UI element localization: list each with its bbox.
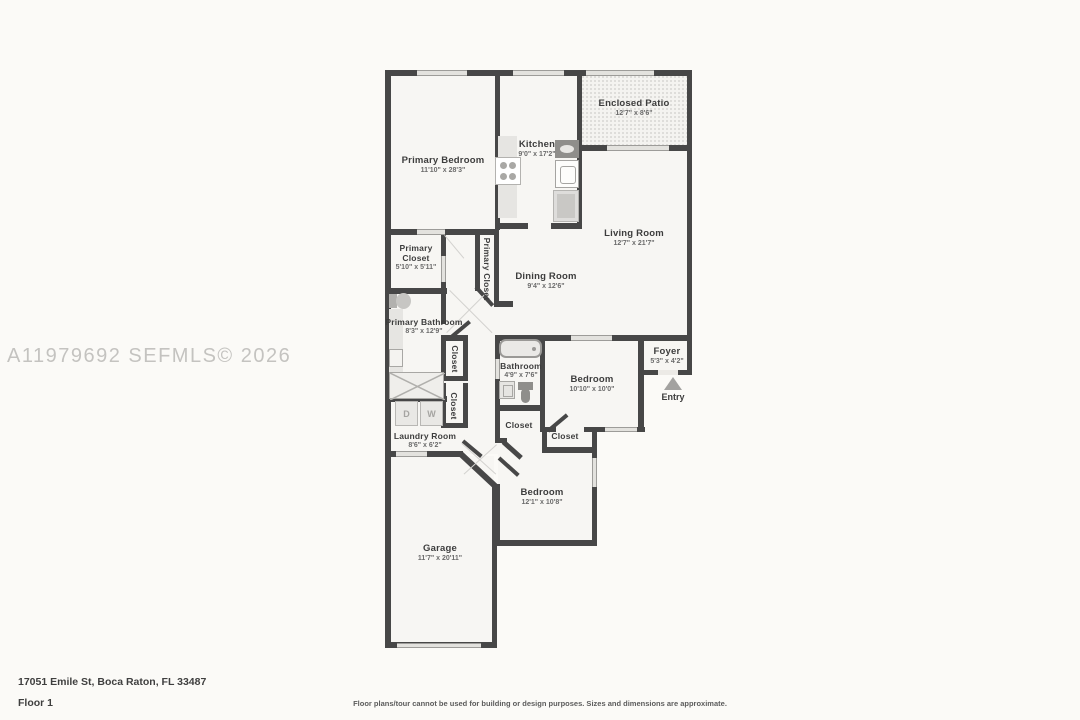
room-label-living-room: Living Room 12'7" x 21'7" xyxy=(604,229,664,248)
room-label-bathroom: Bathroom 4'9" x 7'6" xyxy=(500,362,542,380)
washer-icon: W xyxy=(420,401,443,426)
entry-label: Entry xyxy=(661,392,684,402)
washer-label: W xyxy=(427,409,436,419)
bathtub-icon xyxy=(499,339,542,358)
toilet-icon xyxy=(396,293,411,309)
window xyxy=(571,335,612,341)
room-label-garage: Garage 11'7" x 20'11" xyxy=(418,544,462,563)
wall xyxy=(494,301,513,307)
wall xyxy=(495,223,528,229)
window xyxy=(513,70,564,76)
room-label-closet-hall-upper: Closet xyxy=(450,345,460,372)
window xyxy=(592,458,597,487)
stove-icon xyxy=(495,157,521,185)
wall-post xyxy=(654,70,663,76)
range-hood-icon xyxy=(555,140,579,158)
window xyxy=(586,70,657,76)
oven-icon xyxy=(555,160,579,188)
wall xyxy=(495,540,597,546)
toilet-icon xyxy=(521,389,530,403)
room-label-dining-room: Dining Room 9'4" x 12'6" xyxy=(515,272,576,291)
room-label-foyer: Foyer 5'3" x 4'2" xyxy=(650,347,683,366)
wall xyxy=(687,70,692,375)
sink-icon xyxy=(389,349,403,367)
fridge-icon xyxy=(553,190,579,222)
wall xyxy=(475,233,480,291)
room-label-closet-1: Closet xyxy=(505,421,532,431)
room-label-primary-bedroom: Primary Bedroom 11'10" x 28'3" xyxy=(402,156,485,175)
wall xyxy=(495,484,500,545)
wall xyxy=(463,337,468,381)
wall xyxy=(642,370,658,375)
wall xyxy=(441,423,468,428)
room-label-closet-2: Closet xyxy=(551,432,578,442)
floor-plan-canvas: D W Entry Primary Bedroom 11'10" x 28'3"… xyxy=(0,0,1080,720)
room-label-kitchen: Kitchen 9'0" x 17'2" xyxy=(518,140,555,159)
dryer-icon: D xyxy=(395,401,418,426)
wall xyxy=(678,370,692,375)
room-label-enclosed-patio: Enclosed Patio 12'7" x 8'6" xyxy=(599,99,670,118)
wall xyxy=(441,376,468,381)
wall xyxy=(577,70,582,150)
floor-label: Floor 1 xyxy=(18,697,53,709)
entry-door-opening xyxy=(658,370,678,375)
room-label-bedroom-1: Bedroom 10'10" x 10'0" xyxy=(569,375,614,394)
property-address: 17051 Emile St, Boca Raton, FL 33487 xyxy=(18,676,206,688)
room-label-primary-closet-hall: Primary Closet xyxy=(482,238,492,301)
wall xyxy=(638,335,644,432)
door-opening xyxy=(417,229,445,235)
shower-icon xyxy=(389,372,444,399)
room-label-primary-bathroom: Primary Bathroom 8'3" x 12'9" xyxy=(385,318,462,336)
disclaimer-text: Floor plans/tour cannot be used for buil… xyxy=(353,699,727,708)
wall xyxy=(542,447,597,453)
window xyxy=(605,427,637,432)
wall xyxy=(668,145,692,151)
window xyxy=(396,451,427,457)
room-label-laundry-room: Laundry Room 8'6" x 6'2" xyxy=(394,432,456,450)
wall xyxy=(494,233,499,306)
sliding-door xyxy=(607,145,669,151)
room-label-primary-closet: Primary Closet 5'10" x 5'11" xyxy=(390,244,442,272)
garage-door xyxy=(397,643,481,648)
room-label-closet-hall-lower: Closet xyxy=(449,392,459,419)
wall xyxy=(463,383,468,428)
window xyxy=(417,70,467,76)
wall xyxy=(495,405,545,411)
entry-arrow-icon xyxy=(664,377,682,390)
mls-watermark: A11979692 SEFMLS© 2026 xyxy=(7,345,291,368)
room-label-bedroom-2: Bedroom 12'1" x 10'8" xyxy=(520,488,563,507)
sink-icon xyxy=(499,381,515,399)
dryer-label: D xyxy=(403,409,410,419)
wall xyxy=(584,427,605,432)
